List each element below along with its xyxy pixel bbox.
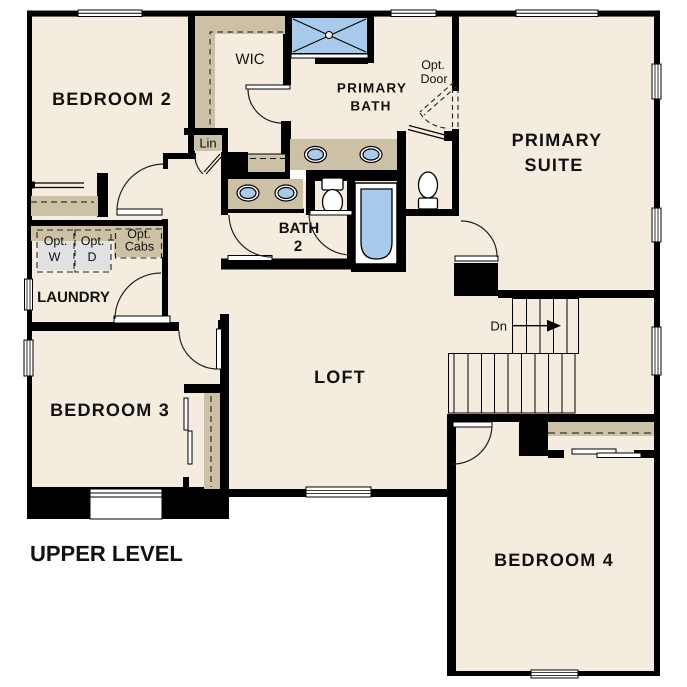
svg-text:BATH: BATH <box>279 220 320 237</box>
svg-text:WIC: WIC <box>235 51 264 68</box>
svg-text:Opt.: Opt. <box>44 234 68 248</box>
svg-text:Opt.: Opt. <box>421 58 445 72</box>
svg-text:D: D <box>87 250 96 264</box>
svg-text:Cabs: Cabs <box>125 240 154 254</box>
svg-text:PRIMARY: PRIMARY <box>337 81 407 96</box>
svg-text:LOFT: LOFT <box>314 367 366 387</box>
svg-text:W: W <box>49 250 61 264</box>
svg-text:LAUNDRY: LAUNDRY <box>37 289 110 306</box>
svg-text:2: 2 <box>294 238 302 255</box>
svg-text:PRIMARY: PRIMARY <box>512 130 603 150</box>
svg-text:Opt.: Opt. <box>81 234 105 248</box>
svg-text:BEDROOM 4: BEDROOM 4 <box>494 550 614 570</box>
svg-text:Lin: Lin <box>199 136 216 151</box>
svg-text:BATH: BATH <box>350 99 391 114</box>
svg-text:Dn: Dn <box>490 319 507 334</box>
svg-text:BEDROOM 2: BEDROOM 2 <box>52 89 172 109</box>
svg-text:SUITE: SUITE <box>524 155 583 175</box>
svg-text:UPPER LEVEL: UPPER LEVEL <box>30 541 183 566</box>
svg-text:Door: Door <box>420 72 447 86</box>
svg-text:BEDROOM 3: BEDROOM 3 <box>50 400 170 420</box>
